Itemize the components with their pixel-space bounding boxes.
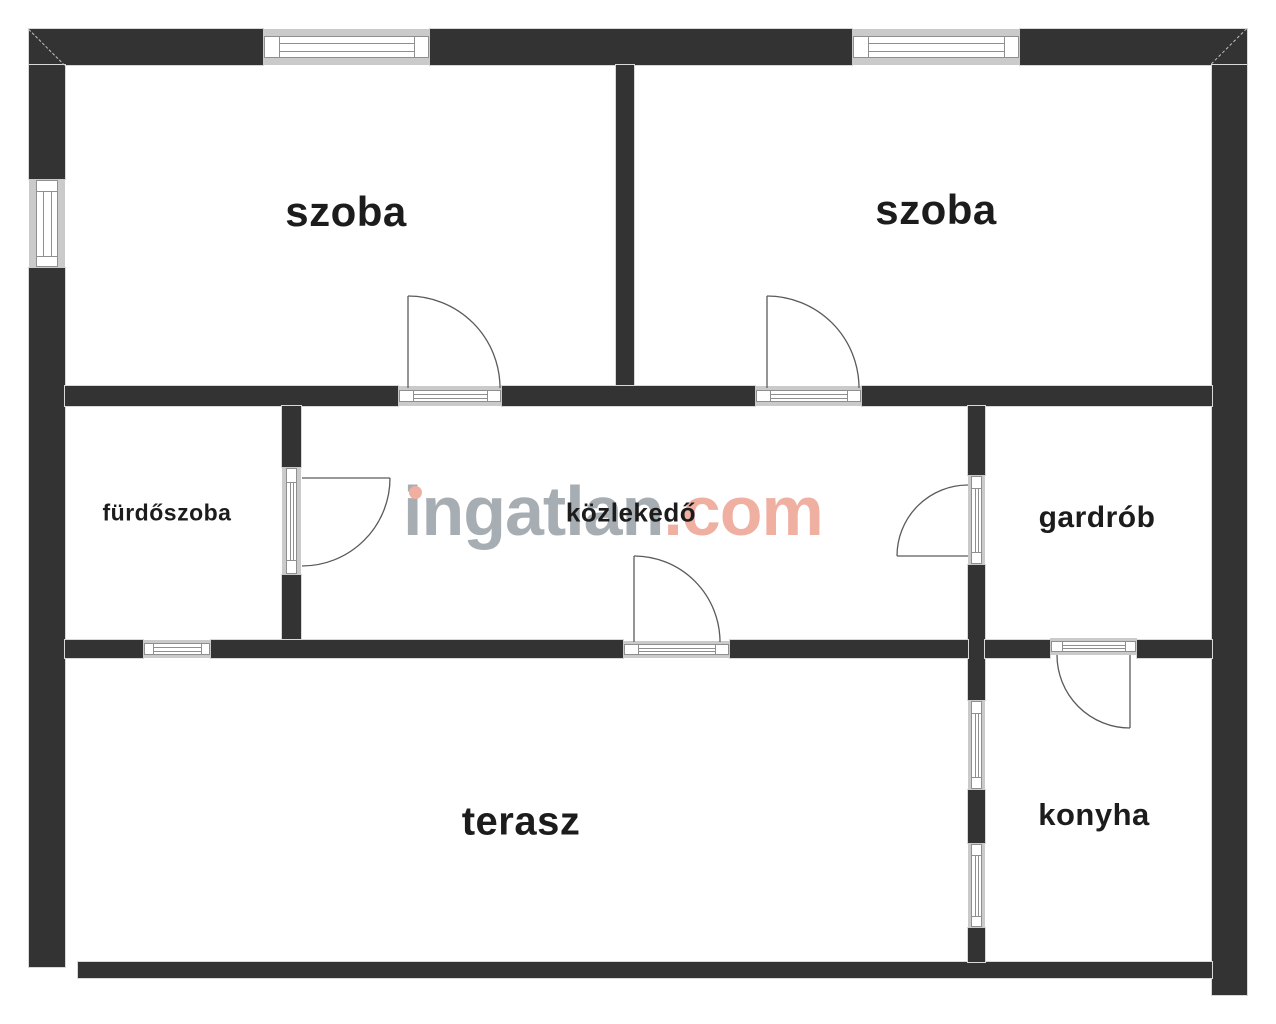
kozlekedo-terasz-door-swing-arc — [634, 556, 720, 642]
szoba-left-door-swing-arc — [408, 296, 500, 388]
szoba-right-door-swing-arc — [767, 296, 859, 388]
watermark-i-dot-icon — [409, 486, 422, 499]
room-label-terasz: terasz — [462, 800, 581, 845]
furdoszoba-door-swing-arc — [302, 478, 390, 566]
room-label-kozlekedo: közlekedő — [566, 498, 696, 529]
room-label-szoba-right: szoba — [875, 186, 997, 234]
room-label-szoba-left: szoba — [285, 188, 407, 236]
floor-plan: ingatlan.com szobaszobafürdőszobaközleke… — [0, 0, 1276, 1024]
room-label-gardrob: gardrób — [1039, 501, 1156, 535]
room-label-konyha: konyha — [1038, 797, 1150, 833]
gardrob-door-swing-arc — [897, 485, 968, 556]
room-label-furdoszoba: fürdőszoba — [103, 500, 232, 527]
konyha-door-swing-arc — [1057, 655, 1130, 728]
